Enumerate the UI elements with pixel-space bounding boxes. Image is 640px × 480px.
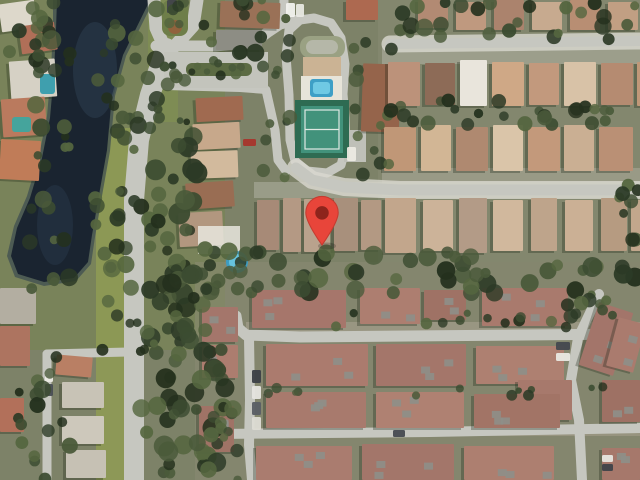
- house: [565, 200, 593, 251]
- tree-cluster: [516, 312, 526, 322]
- tree-cluster: [96, 344, 108, 356]
- tree-cluster: [537, 110, 552, 125]
- roof-vent: [624, 407, 633, 414]
- tree-cluster: [486, 284, 503, 301]
- tree-cluster: [384, 103, 399, 118]
- tree-cluster: [50, 277, 59, 286]
- tree-cluster: [346, 281, 364, 299]
- tree-cluster: [440, 272, 456, 288]
- tree-cluster: [603, 33, 615, 45]
- tree-cluster: [589, 104, 600, 115]
- tree-cluster: [230, 444, 243, 457]
- tree-cluster: [376, 121, 385, 130]
- tree-cluster: [33, 380, 51, 398]
- roof-vent: [344, 372, 353, 379]
- roof-vent: [492, 366, 501, 373]
- tree-cluster: [191, 404, 202, 415]
- tree-cluster: [26, 283, 37, 294]
- tree-cluster: [350, 103, 361, 114]
- house: [528, 127, 560, 171]
- tree-cluster: [615, 186, 630, 201]
- tree-cluster: [552, 260, 563, 271]
- tree-cluster: [499, 111, 509, 121]
- pin-dot: [315, 206, 329, 220]
- house: [195, 96, 243, 122]
- tree-cluster: [229, 64, 237, 72]
- tree-cluster: [160, 231, 175, 246]
- tree-cluster: [403, 253, 418, 268]
- roof-vent: [210, 316, 219, 323]
- roof-vent: [421, 367, 430, 374]
- tree-cluster: [35, 191, 52, 208]
- tree-cluster: [26, 203, 36, 213]
- tree-cluster: [128, 195, 140, 207]
- tree-cluster: [175, 20, 183, 28]
- tree-cluster: [231, 282, 244, 295]
- roof-vent: [273, 297, 282, 304]
- tree-cluster: [223, 266, 237, 280]
- tree-cluster: [461, 118, 474, 131]
- tree-cluster: [506, 390, 517, 401]
- tree-cluster: [559, 1, 572, 14]
- house: [66, 450, 106, 478]
- tree-cluster: [348, 43, 359, 54]
- tree-cluster: [152, 293, 169, 310]
- tree-cluster: [164, 18, 175, 29]
- tree-cluster: [390, 273, 402, 285]
- tree-cluster: [29, 450, 41, 462]
- tree-cluster: [397, 108, 411, 122]
- tree-cluster: [353, 131, 363, 141]
- townhome: [424, 290, 466, 320]
- roof-vent: [295, 454, 304, 461]
- tree-cluster: [168, 61, 176, 69]
- tree-cluster: [383, 159, 394, 170]
- roof-vent: [374, 472, 383, 479]
- tree-cluster: [601, 295, 611, 305]
- tree-cluster: [102, 295, 115, 308]
- tree-cluster: [110, 19, 120, 29]
- tree-cluster: [615, 260, 630, 275]
- tree-cluster: [418, 248, 436, 266]
- tree-cluster: [215, 343, 227, 355]
- tree-cluster: [195, 268, 208, 281]
- tree-cluster: [281, 49, 294, 62]
- roof-vent: [263, 299, 272, 306]
- backyard-pool: [12, 117, 31, 132]
- house: [529, 63, 559, 105]
- tree-cluster: [308, 268, 328, 288]
- tree-cluster: [596, 9, 611, 24]
- community-pool-shallow: [313, 82, 330, 94]
- roof-vent: [392, 400, 401, 407]
- tree-cluster: [109, 210, 125, 226]
- tree-cluster: [45, 368, 56, 379]
- roof-vent: [304, 461, 313, 468]
- car: [252, 370, 261, 383]
- tree-cluster: [434, 30, 447, 43]
- tree-cluster: [582, 257, 602, 277]
- tree-cluster: [348, 72, 364, 88]
- tree-cluster: [172, 400, 190, 418]
- tree-cluster: [619, 209, 628, 218]
- townhome-street-west: [249, 337, 252, 480]
- tree-cluster: [608, 311, 617, 320]
- tree-cluster: [271, 383, 281, 393]
- tree-cluster: [162, 245, 172, 255]
- tree-cluster: [12, 23, 27, 38]
- tree-cluster: [116, 111, 130, 125]
- roof-vent: [613, 410, 622, 417]
- tree-cluster: [197, 241, 213, 257]
- townhome: [474, 394, 560, 428]
- house: [459, 198, 487, 253]
- tree-cluster: [145, 159, 166, 180]
- car: [252, 386, 261, 399]
- tree-cluster: [60, 268, 78, 286]
- car: [347, 147, 356, 161]
- car: [602, 464, 613, 471]
- tree-cluster: [154, 436, 175, 457]
- tree-cluster: [15, 388, 24, 397]
- tree-cluster: [281, 14, 290, 23]
- tree-cluster: [385, 43, 398, 56]
- tree-cluster: [625, 232, 639, 246]
- tree-cluster: [239, 10, 250, 21]
- tree-cluster: [56, 232, 71, 247]
- tree-cluster: [29, 397, 45, 413]
- tree-cluster: [597, 305, 608, 316]
- tree-cluster: [271, 70, 280, 79]
- tree-cluster: [189, 434, 206, 451]
- tree-cluster: [546, 316, 557, 327]
- roof-vent: [506, 471, 515, 478]
- tree-cluster: [588, 385, 594, 391]
- tree-cluster: [117, 130, 132, 145]
- tree-cluster: [456, 384, 464, 392]
- tree-cluster: [62, 438, 78, 454]
- tree-cluster: [215, 417, 227, 429]
- tree-cluster: [256, 11, 270, 25]
- house: [421, 125, 451, 171]
- tree-cluster: [144, 241, 156, 253]
- tree-cluster: [216, 70, 226, 80]
- townhome: [266, 344, 368, 386]
- house: [564, 62, 596, 106]
- tree-cluster: [136, 347, 145, 356]
- tree-cluster: [90, 219, 101, 230]
- tree-cluster: [29, 38, 41, 50]
- car: [252, 402, 261, 415]
- tree-cluster: [169, 68, 180, 79]
- tree-cluster: [598, 382, 607, 391]
- tree-cluster: [575, 7, 587, 19]
- tree-cluster: [370, 146, 379, 155]
- tree-cluster: [574, 296, 589, 311]
- tree-cluster: [517, 116, 532, 131]
- tree-cluster: [90, 198, 105, 213]
- tree-cluster: [450, 105, 459, 114]
- tree-cluster: [57, 119, 72, 134]
- house: [257, 200, 279, 250]
- tree-cluster: [257, 164, 270, 177]
- tree-cluster: [64, 142, 73, 151]
- tree-cluster: [421, 318, 433, 330]
- tree-cluster: [22, 234, 37, 249]
- house: [361, 200, 381, 250]
- tree-cluster: [501, 318, 510, 327]
- tree-cluster: [554, 29, 563, 38]
- car: [556, 342, 570, 350]
- house: [493, 200, 523, 251]
- tree-cluster: [469, 267, 484, 282]
- car: [556, 353, 570, 361]
- tree-cluster: [198, 323, 212, 337]
- roof-vent: [402, 411, 411, 418]
- tree-cluster: [151, 187, 166, 202]
- tree-cluster: [109, 100, 119, 110]
- tree-cluster: [269, 253, 287, 271]
- roof-vent: [494, 418, 503, 425]
- tree-cluster: [257, 61, 269, 73]
- backyard-pool: [40, 74, 55, 94]
- tree-cluster: [246, 44, 264, 62]
- tree-cluster: [283, 34, 296, 47]
- tree-cluster: [211, 274, 225, 288]
- house: [456, 127, 488, 171]
- roof-vent: [381, 312, 390, 319]
- tree-cluster: [331, 321, 341, 331]
- tree-cluster: [438, 318, 448, 328]
- house: [385, 198, 416, 253]
- tree-cluster: [471, 2, 486, 17]
- tree-cluster: [15, 436, 28, 449]
- satellite-map[interactable]: [0, 0, 640, 480]
- roof-vent: [444, 359, 453, 366]
- tree-cluster: [177, 117, 184, 124]
- tree-cluster: [630, 1, 639, 10]
- tree-cluster: [32, 49, 45, 62]
- roof-vent: [265, 313, 274, 320]
- roof-vent: [621, 456, 630, 463]
- tree-cluster: [523, 390, 534, 401]
- tree-cluster: [148, 397, 166, 415]
- roof-vent: [291, 374, 300, 381]
- tree-cluster: [523, 0, 536, 13]
- tree-cluster: [15, 419, 27, 431]
- tree-cluster: [186, 162, 207, 183]
- tree-cluster: [125, 319, 134, 328]
- tree-cluster: [148, 0, 165, 17]
- tree-cluster: [420, 116, 435, 131]
- tree-cluster: [280, 172, 290, 182]
- house: [0, 139, 41, 181]
- tree-cluster: [38, 159, 51, 172]
- tree-cluster: [220, 242, 238, 260]
- tree-cluster: [264, 389, 273, 398]
- tree-cluster: [348, 264, 364, 280]
- residential-street-topright: [390, 41, 640, 44]
- house: [334, 198, 358, 251]
- tree-cluster: [151, 214, 166, 229]
- tree-cluster: [482, 27, 495, 40]
- tree-cluster: [255, 31, 267, 43]
- tree-cluster: [57, 417, 67, 427]
- tree-cluster: [33, 67, 44, 78]
- tree-cluster: [153, 112, 165, 124]
- tree-cluster: [100, 49, 108, 57]
- house: [423, 200, 453, 251]
- roof-vent: [492, 411, 501, 418]
- tree-cluster: [512, 17, 522, 27]
- map-viewport[interactable]: [0, 0, 640, 480]
- tree-cluster: [200, 461, 216, 477]
- roof-vent: [531, 314, 540, 321]
- tree-cluster: [292, 389, 298, 395]
- tree-cluster: [415, 19, 433, 37]
- house: [62, 382, 104, 408]
- tree-cluster: [585, 116, 599, 130]
- tree-cluster: [204, 68, 210, 74]
- tree-cluster: [128, 30, 143, 45]
- roof-vent: [226, 327, 235, 334]
- tree-cluster: [605, 106, 614, 115]
- tree-cluster: [162, 273, 181, 292]
- tree-cluster: [156, 368, 176, 388]
- tree-cluster: [171, 138, 186, 153]
- tree-cluster: [464, 310, 471, 317]
- clubhouse-roof: [303, 57, 341, 76]
- tree-cluster: [111, 74, 125, 88]
- tree-cluster: [350, 309, 358, 317]
- tree-cluster: [249, 246, 263, 260]
- house: [493, 125, 523, 171]
- tree-cluster: [183, 119, 190, 126]
- house: [599, 127, 633, 171]
- tree-cluster: [474, 109, 483, 118]
- tree-cluster: [455, 316, 464, 325]
- tree-cluster: [171, 346, 187, 362]
- roof-vent: [318, 400, 327, 407]
- roof-vent: [518, 368, 527, 375]
- car: [252, 417, 261, 430]
- tree-cluster: [144, 122, 156, 134]
- tree-cluster: [129, 145, 138, 154]
- roof-vent: [316, 452, 325, 459]
- loop-island-rocks: [306, 40, 338, 54]
- tree-cluster: [27, 96, 45, 114]
- tree-cluster: [294, 281, 311, 298]
- tree-cluster: [600, 115, 611, 126]
- roof-vent: [450, 307, 459, 314]
- roof-vent: [376, 461, 385, 468]
- tree-cluster: [449, 251, 461, 263]
- tree-cluster: [140, 325, 155, 340]
- tree-cluster: [199, 20, 210, 31]
- tree-cluster: [188, 68, 195, 75]
- tree-cluster: [561, 322, 571, 332]
- tree-cluster: [570, 309, 581, 320]
- tree-cluster: [364, 246, 383, 265]
- tree-cluster: [159, 62, 169, 72]
- roof-vent: [444, 298, 453, 305]
- tree-cluster: [109, 239, 125, 255]
- house: [460, 60, 487, 106]
- tree-cluster: [161, 77, 175, 91]
- tree-cluster: [215, 378, 234, 397]
- tree-cluster: [387, 286, 400, 299]
- house: [564, 125, 594, 171]
- tree-cluster: [283, 110, 298, 125]
- tree-cluster: [188, 292, 200, 304]
- tree-cluster: [123, 280, 139, 296]
- roof-vent: [498, 374, 507, 381]
- roof-vent: [333, 358, 342, 365]
- roof-vent: [425, 373, 434, 380]
- house: [601, 63, 633, 105]
- tree-cluster: [206, 36, 217, 47]
- tree-cluster: [115, 187, 124, 196]
- car: [296, 4, 304, 17]
- tree-cluster: [200, 283, 212, 295]
- tree-cluster: [179, 223, 192, 236]
- car: [243, 139, 256, 146]
- tree-cluster: [130, 53, 142, 65]
- tree-cluster: [111, 309, 123, 321]
- house: [601, 198, 627, 251]
- tree-cluster: [220, 433, 229, 442]
- roof-vent: [502, 294, 511, 301]
- tree-cluster: [132, 399, 150, 417]
- tree-cluster: [31, 21, 43, 33]
- tree-cluster: [106, 38, 118, 50]
- car: [602, 455, 613, 462]
- tree-cluster: [621, 19, 633, 31]
- amenity-layer: [295, 36, 349, 158]
- roof-vent: [543, 472, 552, 479]
- tree-cluster: [64, 57, 74, 67]
- tree-cluster: [521, 274, 539, 292]
- tree-cluster: [224, 400, 241, 417]
- tree-cluster: [204, 427, 219, 442]
- townhome: [476, 346, 564, 384]
- tree-cluster: [214, 59, 222, 67]
- tree-cluster: [130, 117, 147, 134]
- tree-cluster: [91, 73, 104, 86]
- tree-cluster: [232, 46, 246, 60]
- roof-vent: [498, 469, 507, 476]
- car: [393, 430, 405, 437]
- tree-cluster: [117, 256, 134, 273]
- tree-cluster: [272, 274, 286, 288]
- tree-cluster: [265, 119, 274, 128]
- house: [531, 198, 557, 251]
- tree-cluster: [140, 426, 153, 439]
- tree-cluster: [175, 190, 195, 210]
- roof-vent: [536, 300, 545, 307]
- house: [532, 2, 562, 30]
- tree-cluster: [492, 94, 507, 109]
- tree-cluster: [141, 71, 155, 85]
- tree-cluster: [149, 345, 164, 360]
- tree-cluster: [412, 391, 420, 399]
- tree-cluster: [360, 37, 371, 48]
- tree-cluster: [3, 45, 16, 58]
- tree-cluster: [192, 370, 211, 389]
- tree-cluster: [34, 151, 42, 159]
- tree-cluster: [172, 0, 184, 12]
- tree-cluster: [356, 168, 370, 182]
